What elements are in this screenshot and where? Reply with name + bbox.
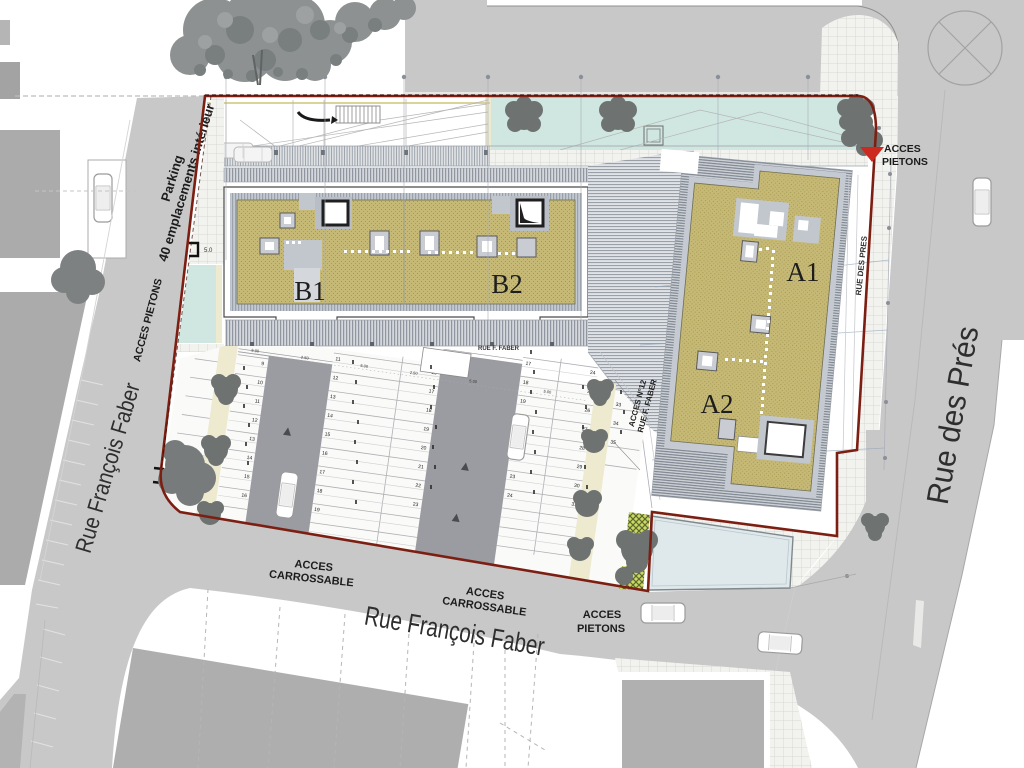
svg-text:16: 16: [322, 450, 329, 457]
svg-text:23: 23: [509, 474, 516, 481]
svg-text:B1: B1: [294, 276, 326, 306]
svg-text:15: 15: [324, 432, 331, 439]
svg-text:21: 21: [418, 464, 425, 471]
svg-text:A1: A1: [787, 257, 820, 287]
svg-text:RUE F. FABER: RUE F. FABER: [478, 346, 520, 352]
svg-text:35: 35: [610, 439, 617, 446]
svg-text:17: 17: [319, 469, 326, 476]
svg-text:18: 18: [316, 488, 323, 495]
svg-text:A2: A2: [701, 389, 734, 419]
svg-text:13: 13: [330, 394, 337, 401]
svg-text:5.0: 5.0: [204, 248, 213, 254]
svg-text:24: 24: [507, 493, 514, 500]
svg-text:30: 30: [574, 483, 581, 490]
svg-text:10: 10: [257, 380, 264, 387]
svg-text:17: 17: [525, 361, 532, 368]
svg-text:20: 20: [420, 445, 427, 452]
svg-text:33: 33: [615, 402, 622, 409]
svg-text:19: 19: [423, 426, 430, 433]
svg-text:13: 13: [249, 436, 256, 443]
svg-text:17: 17: [428, 389, 435, 396]
svg-text:ACCES: ACCES: [884, 143, 921, 155]
svg-text:PIETONS: PIETONS: [882, 156, 928, 168]
svg-text:18: 18: [522, 380, 529, 387]
svg-text:12: 12: [332, 375, 339, 382]
svg-text:22: 22: [415, 483, 422, 490]
svg-text:16: 16: [241, 493, 248, 500]
svg-text:19: 19: [520, 398, 527, 405]
svg-text:14: 14: [327, 413, 334, 420]
svg-text:23: 23: [412, 501, 419, 508]
svg-text:12: 12: [252, 417, 259, 424]
svg-text:34: 34: [613, 421, 620, 428]
svg-text:PIETONS: PIETONS: [577, 623, 625, 635]
svg-text:11: 11: [335, 356, 341, 363]
svg-text:15: 15: [244, 474, 251, 481]
svg-text:29: 29: [576, 464, 583, 471]
svg-text:11: 11: [254, 398, 260, 405]
svg-text:ACCES: ACCES: [583, 609, 622, 621]
svg-text:14: 14: [246, 455, 253, 462]
svg-text:19: 19: [314, 507, 321, 514]
svg-text:B2: B2: [491, 269, 523, 299]
svg-text:24: 24: [589, 370, 596, 377]
